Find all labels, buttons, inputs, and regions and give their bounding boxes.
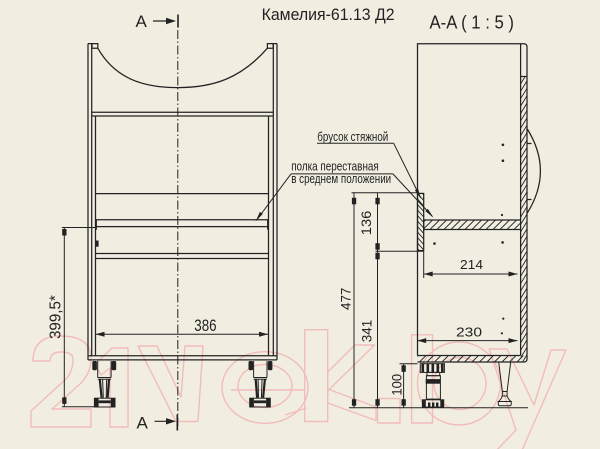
svg-text:Камелия-61.13 Д2: Камелия-61.13 Д2 bbox=[262, 5, 395, 24]
svg-text:брусок стяжной: брусок стяжной bbox=[317, 130, 388, 144]
svg-text:136: 136 bbox=[359, 211, 374, 236]
svg-text:A: A bbox=[137, 414, 149, 433]
svg-text:A-A ( 1 : 5 ): A-A ( 1 : 5 ) bbox=[430, 12, 515, 33]
svg-text:386: 386 bbox=[194, 317, 216, 335]
svg-text:A: A bbox=[136, 12, 148, 31]
svg-text:100: 100 bbox=[390, 374, 405, 396]
svg-text:341: 341 bbox=[359, 320, 374, 342]
svg-text:214: 214 bbox=[460, 258, 483, 272]
svg-text:399,5*: 399,5* bbox=[47, 295, 64, 339]
svg-text:230: 230 bbox=[456, 325, 482, 340]
svg-text:477: 477 bbox=[338, 288, 353, 310]
